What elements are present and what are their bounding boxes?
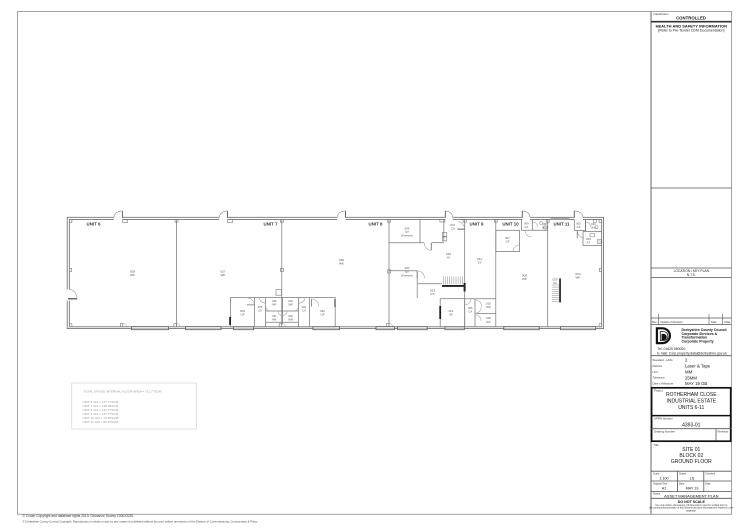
svg-text:HM: HM [272, 317, 276, 321]
svg-text:UNIT 6: UNIT 6 [87, 222, 101, 227]
svg-text:© Derbyshire County Council Co: © Derbyshire County Council Copyright. R… [23, 519, 259, 523]
svg-text:SITE 01: SITE 01 [682, 447, 700, 453]
svg-text:020: 020 [288, 314, 293, 318]
svg-text:Standard - HNG: Standard - HNG [653, 358, 673, 362]
svg-text:Unit: Unit [653, 370, 658, 374]
svg-text:HEALTH AND SAFETY INFORMATION: HEALTH AND SAFETY INFORMATION [656, 23, 728, 28]
svg-text:Revision: Revision [718, 430, 729, 434]
svg-text:UNIT 11 GIA = 66.97SQM: UNIT 11 GIA = 66.97SQM [83, 420, 119, 424]
svg-text:ASSET MANAGEMENT PLAN: ASSET MANAGEMENT PLAN [664, 494, 718, 499]
svg-text:CA: CA [553, 281, 557, 285]
svg-text:ST: ST [478, 260, 482, 264]
svg-text:TOTAL GROSS INTERNAL FLOOR ARE: TOTAL GROSS INTERNAL FLOOR AREA = 711.77… [84, 390, 162, 394]
svg-text:OF: OF [320, 312, 324, 316]
svg-text:(Freezer): (Freezer) [401, 234, 413, 238]
svg-text:GROUND FLOOR: GROUND FLOOR [671, 459, 712, 465]
svg-text:originator.: originator. [686, 510, 697, 513]
svg-text:Rev:: Rev: [652, 320, 658, 324]
svg-text:CA: CA [451, 227, 455, 231]
svg-text:OF: OF [505, 240, 509, 244]
svg-text:MAY 19: MAY 19 [686, 486, 699, 490]
svg-text:1:100: 1:100 [659, 476, 668, 480]
svg-text:Original Size: Original Size [653, 482, 668, 485]
svg-text:OF: OF [240, 312, 244, 316]
svg-text:UNITS 6-11: UNITS 6-11 [678, 405, 704, 411]
svg-text:CONTROLLED: CONTROLLED [676, 15, 706, 20]
svg-text:UNIT 10: UNIT 10 [502, 222, 519, 227]
svg-text:UNIT 11: UNIT 11 [553, 222, 570, 227]
svg-text:Title: Title [654, 443, 660, 447]
svg-text:© Crown Copyright and database: © Crown Copyright and database rights 20… [23, 514, 134, 518]
svg-text:E-mail: Corp.property.data@der: E-mail: Corp.property.data@derbyshire.go… [657, 352, 727, 356]
svg-text:Classification: Classification [653, 12, 669, 16]
svg-text:Laser & Tape: Laser & Tape [685, 364, 711, 369]
svg-text:CA: CA [302, 309, 306, 313]
svg-text:UNIT 8: UNIT 8 [369, 222, 383, 227]
svg-text:Tel: 01629 580000: Tel: 01629 580000 [657, 347, 685, 351]
svg-text:Date: Date [711, 320, 717, 324]
svg-text:Project: Project [654, 389, 663, 393]
svg-text:021: 021 [272, 314, 277, 318]
svg-text:UNIT 9: UNIT 9 [470, 222, 484, 227]
svg-text:ROTHERHAM CLOSE: ROTHERHAM CLOSE [666, 392, 717, 398]
svg-text:KT: KT [587, 240, 591, 244]
svg-text:Details of Revision: Details of Revision [661, 320, 684, 324]
svg-text:026: 026 [272, 299, 277, 303]
svg-text:CA: CA [468, 310, 472, 314]
svg-text:LS: LS [690, 476, 695, 480]
svg-text:25MM: 25MM [685, 375, 697, 380]
svg-text:WP: WP [272, 302, 276, 306]
svg-text:(Freezer): (Freezer) [401, 273, 413, 277]
svg-text:024: 024 [302, 305, 307, 309]
svg-text:CA: CA [577, 225, 581, 229]
svg-text:UNIT 7: UNIT 7 [264, 222, 278, 227]
svg-text:Scale: Scale [653, 473, 660, 476]
svg-text:Drawn: Drawn [679, 473, 687, 476]
svg-text:Method: Method [653, 364, 663, 368]
svg-text:CA: CA [258, 309, 262, 313]
svg-text:4393-01: 4393-01 [682, 423, 701, 429]
svg-text:Tolerance: Tolerance [653, 376, 666, 380]
svg-text:025: 025 [258, 305, 263, 309]
svg-text:MAY 19 GB: MAY 19 GB [685, 381, 707, 386]
svg-text:Drawing Number: Drawing Number [654, 430, 675, 434]
svg-text:BLOCK 02: BLOCK 02 [679, 453, 703, 459]
svg-text:INDUSTRIAL ESTATE: INDUSTRIAL ESTATE [666, 399, 716, 405]
svg-text:Status: Status [653, 493, 661, 496]
svg-text:WM: WM [288, 317, 293, 321]
svg-text:Date: Date [705, 482, 711, 485]
svg-text:WC: WC [486, 320, 491, 324]
svg-text:Corporate Property: Corporate Property [682, 339, 714, 343]
svg-text:KI: KI [447, 256, 450, 260]
svg-text:OF: OF [449, 312, 453, 316]
svg-text:WP: WP [289, 302, 293, 306]
svg-text:A1: A1 [662, 486, 667, 490]
svg-text:CA: CA [524, 225, 528, 229]
svg-text:N.T.S.: N.T.S. [687, 273, 696, 277]
svg-text:KS: KS [430, 292, 434, 296]
svg-text:006: 006 [468, 306, 473, 310]
svg-text:WA: WA [486, 305, 491, 309]
svg-text:Date: Date [679, 482, 685, 485]
svg-text:(Refer to Pre-Tender CDM Docum: (Refer to Pre-Tender CDM Documentation) [658, 29, 725, 33]
svg-text:Checked: Checked [705, 473, 715, 476]
svg-text:Initial: Initial [724, 320, 731, 324]
svg-text:Date of Measure: Date of Measure [653, 382, 674, 386]
svg-text:019: 019 [288, 299, 293, 303]
svg-text:MM: MM [685, 369, 693, 374]
svg-text:UPRN Number: UPRN Number [654, 416, 673, 420]
